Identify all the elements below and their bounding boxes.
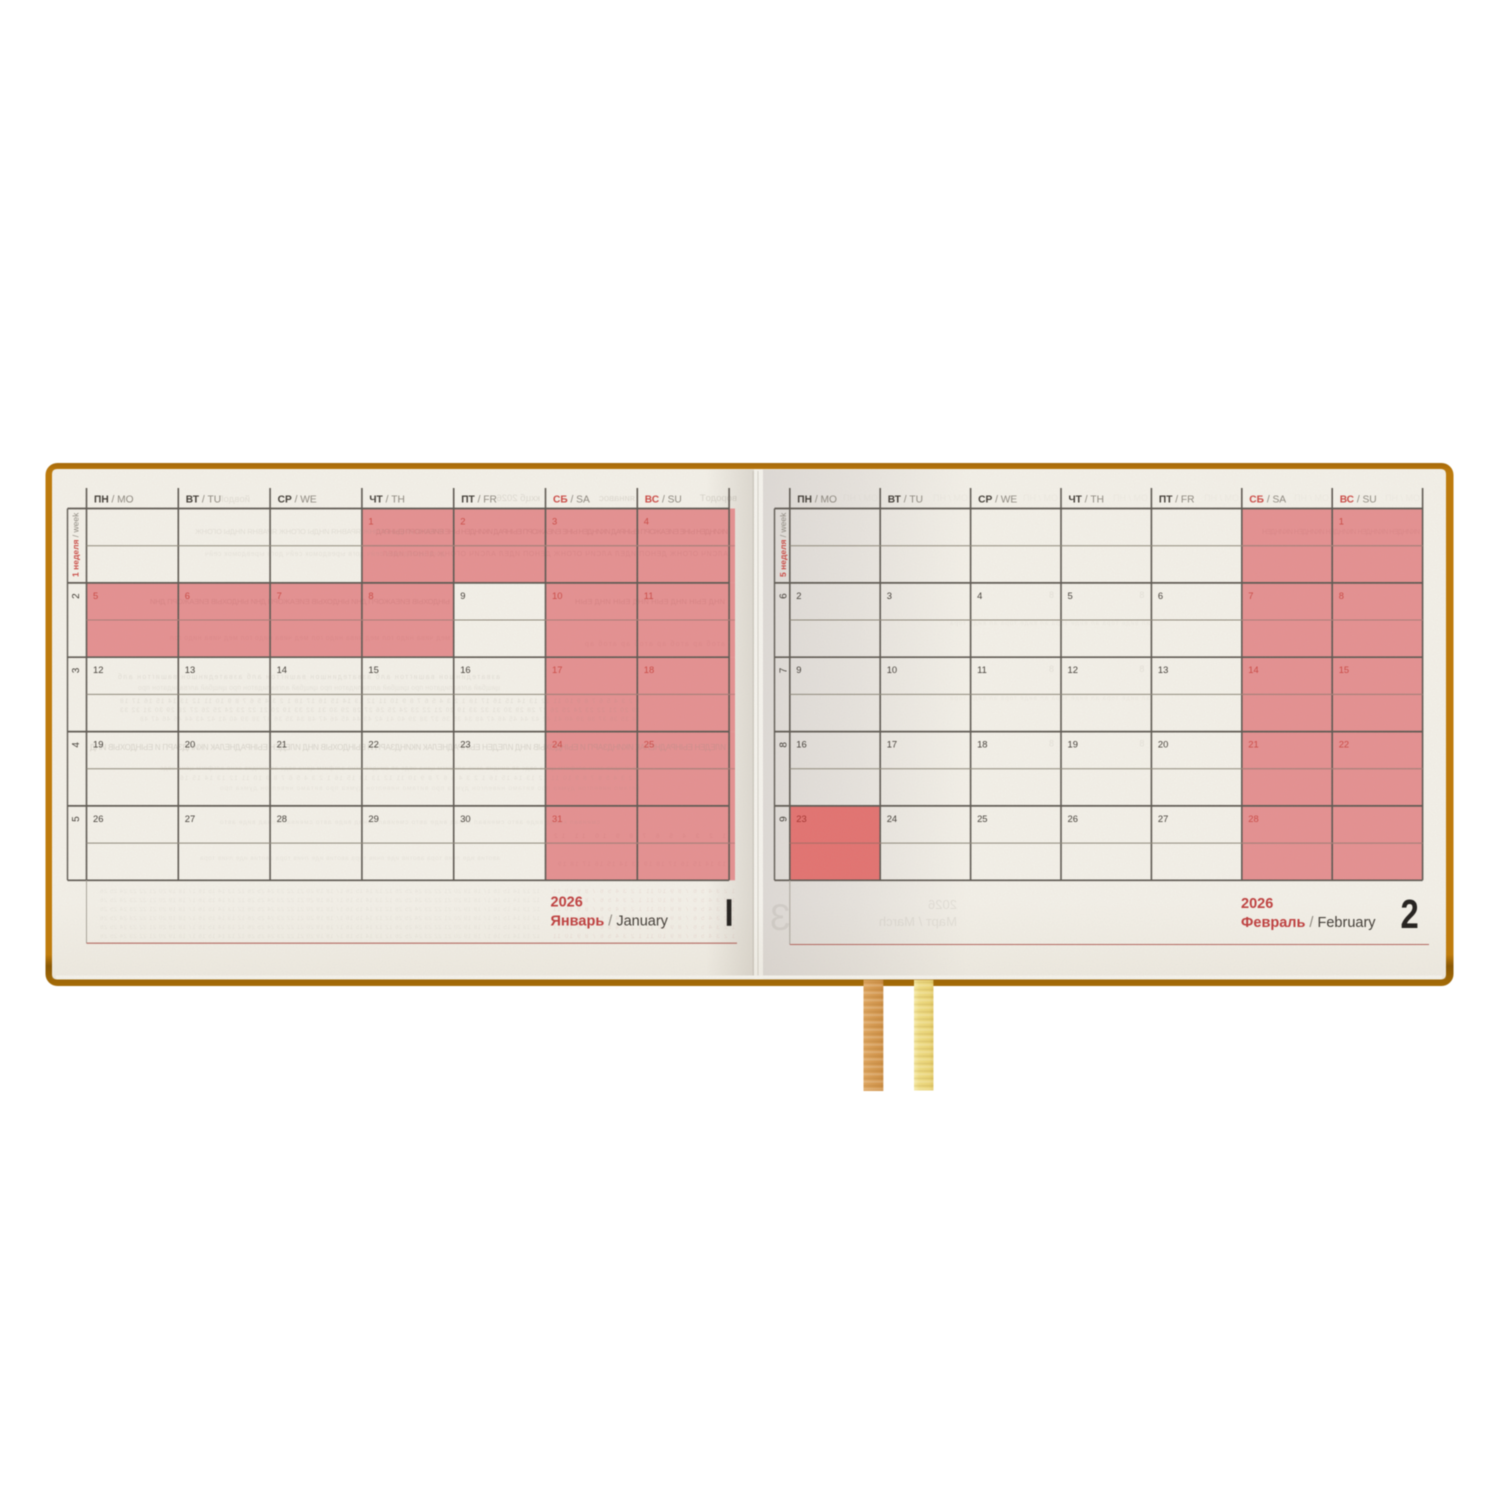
svg-text:10: 10 [552,590,562,601]
svg-text:ОМ / НП: ОМ / НП [843,493,878,503]
svg-text:24: 24 [887,813,897,824]
svg-text:8: 8 [1049,590,1054,600]
svg-text:23: 23 [796,813,806,824]
svg-text:24: 24 [552,739,562,750]
svg-text:12: 12 [93,664,103,675]
svg-text:ВТ / TU: ВТ / TU [186,495,221,506]
svg-text:1 2 3 4 5 6 7 8 9 10 11 12 13: 1 2 3 4 5 6 7 8 9 10 11 12 13 14 15 16 1… [180,775,640,782]
svg-text:14: 14 [277,664,287,675]
svg-text:кхцб 2026: кхцб 2026 [496,493,540,504]
svg-text:12 13 14 15 16 17 18 19 20 21: 12 13 14 15 16 17 18 19 20 21 22 23 24 2… [99,925,540,931]
svg-text:4: 4 [644,516,649,527]
svg-text:7: 7 [277,590,282,601]
svg-text:2: 2 [1401,890,1419,936]
svg-text:ВТ / TU: ВТ / TU [888,495,923,506]
svg-text:мед чива нидо гол мед чива нид: мед чива нидо гол мед чива нидо гол мед … [170,635,450,642]
svg-text:8: 8 [1049,664,1054,674]
svg-text:9: 9 [796,664,801,675]
svg-text:29: 29 [368,813,378,824]
svg-text:3: 3 [770,897,791,938]
svg-text:13 14 15 16 17 18 19 13 14 15: 13 14 15 16 17 18 19 13 14 15 16 17 18 1… [558,861,726,868]
svg-text:6: 6 [779,593,790,599]
svg-text:ЧТ / TH: ЧТ / TH [369,495,404,506]
svg-text:ВС / SU: ВС / SU [1340,495,1377,506]
svg-text:СР / WE: СР / WE [278,495,317,506]
svg-text:15: 15 [368,664,378,675]
svg-text:СБ / SA: СБ / SA [1249,495,1286,506]
svg-text:26: 26 [93,813,103,824]
svg-text:28: 28 [277,813,287,824]
svg-text:1 неделя / week: 1 неделя / week [71,512,81,577]
svg-text:2026: 2026 [1241,896,1273,912]
svg-text:16: 16 [460,664,470,675]
svg-text:ОМ / НП: ОМ / НП [1385,493,1420,503]
svg-text:ОМ / НП: ОМ / НП [933,493,968,503]
svg-text:8: 8 [1139,664,1144,674]
svg-text:25: 25 [977,813,987,824]
svg-text:ЫНДОХЫВ ЕИЕАЖОРП ДНИ ЫНДОХЫВ Е: ЫНДОХЫВ ЕИЕАЖОРП ДНИ ЫНДОХЫВ ЕИЕАЖОРП ДН… [150,597,450,606]
svg-text:14: 14 [1248,664,1258,675]
svg-text:1 2 3 4 5 6 7 8 9 10 11 12 13: 1 2 3 4 5 6 7 8 9 10 11 12 13 14 15 16 1… [120,698,640,705]
svg-text:ПН / МО: ПН / МО [797,495,837,506]
svg-text:ПТ / FR: ПТ / FR [461,495,497,506]
svg-text:12 13 14 15 16 17 18 19 20 21: 12 13 14 15 16 17 18 19 20 21 22 23 24 2… [99,934,540,940]
svg-text:20: 20 [185,739,195,750]
svg-text:12 13 14 15 16 17 18 19 20 21: 12 13 14 15 16 17 18 19 20 21 22 23 24 2… [99,916,540,922]
svg-text:4: 4 [71,742,82,748]
svg-text:витамо нивелгон думка про вита: витамо нивелгон думка про витамо нивелго… [220,785,640,792]
svg-text:8: 8 [1139,590,1144,600]
svg-text:10: 10 [887,664,897,675]
svg-text:7: 7 [779,667,790,673]
svg-text:22: 22 [368,739,378,750]
svg-text:1: 1 [368,516,373,527]
svg-text:12 13 14 15 16 17 18 19 20 21: 12 13 14 15 16 17 18 19 20 21 22 23 24 2… [99,907,540,913]
svg-text:26: 26 [1068,813,1078,824]
svg-text:ал виде тора ал виде тора ал в: ал виде тора ал виде тора ал виде тора а… [950,695,1150,702]
svg-text:йовдоГ: йовдоГ [218,494,250,505]
svg-text:3: 3 [887,590,892,601]
svg-text:5: 5 [1068,590,1073,601]
svg-text:11: 11 [644,590,654,601]
svg-text:2: 2 [796,590,801,601]
svg-text:18: 18 [644,664,654,675]
svg-text:28: 28 [1248,813,1258,824]
svg-text:13: 13 [1158,664,1168,675]
svg-text:2: 2 [460,516,465,527]
svg-text:1 2 3 4 5 6 7 8 9 10 11 1 2 3: 1 2 3 4 5 6 7 8 9 10 11 1 2 3 4 5 6 7 8 … [552,934,735,940]
svg-text:ИКИНДЕН ИКИНДЕН ИКИНДЕН ИКИНДЕ: ИКИНДЕН ИКИНДЕН ИКИНДЕН ИКИНДЕН ИКИНДЕН [1262,529,1420,536]
svg-text:ЧТ / TH: ЧТ / TH [1069,495,1104,506]
svg-text:13: 13 [185,664,195,675]
svg-text:ОМ / НП: ОМ / НП [1113,493,1148,503]
svg-text:ЯРАВНЯ ИНДЫ ОГОНЖ ЯРАВНЯ ИНДЫ: ЯРАВНЯ ИНДЫ ОГОНЖ ЯРАВНЯ ИНДЫ ОГОНЖ ЯРАВ… [195,527,445,536]
svg-text:6: 6 [1158,590,1163,601]
svg-text:атоб ар атоб ар атоб ар атоб а: атоб ар атоб ар атоб ар атоб ар [585,640,725,648]
svg-text:ОМ / НП: ОМ / НП [1294,493,1329,503]
svg-text:17: 17 [552,664,562,675]
svg-text:ал виде тора ал виде тора ал в: ал виде тора ал виде тора ал виде тора а… [950,620,1150,627]
svg-text:8: 8 [779,742,790,748]
svg-text:вородоТ: вородоТ [700,493,737,504]
svg-text:ВС / SU: ВС / SU [645,495,682,506]
svg-text:СБ / SA: СБ / SA [553,495,590,506]
svg-text:2: 2 [71,593,82,599]
svg-text:3: 3 [71,667,82,673]
svg-text:ОМ / НП: ОМ / НП [1204,493,1239,503]
svg-text:азватединшон вашигтон алб азва: азватединшон вашигтон алб азватединшон в… [118,673,500,681]
svg-text:20: 20 [1158,739,1168,750]
svg-text:19 20 21 22 23 24 25 26 27 28: 19 20 21 22 23 24 25 26 27 28 29 30 31 3… [120,707,640,714]
svg-text:18: 18 [977,739,987,750]
svg-text:8: 8 [1139,739,1144,749]
svg-text:Март / March: Март / March [879,914,957,929]
svg-text:3: 3 [552,516,557,527]
svg-text:25: 25 [644,739,654,750]
svg-text:16: 16 [796,739,806,750]
svg-text:5 неделя / week: 5 неделя / week [778,512,788,577]
svg-text:6: 6 [185,590,190,601]
svg-text:12: 12 [1068,664,1078,675]
svg-text:9: 9 [779,816,790,822]
svg-text:9: 9 [460,590,465,601]
svg-text:8: 8 [1339,590,1344,601]
svg-text:21: 21 [277,739,287,750]
svg-text:34 35 36 37 38 39 40 41 42 43: 34 35 36 37 38 39 40 41 42 43 44 45 46 4… [140,716,640,723]
svg-text:1: 1 [1339,516,1344,527]
svg-text:7: 7 [1248,590,1253,601]
svg-text:2026: 2026 [551,895,583,911]
svg-text:23: 23 [460,739,470,750]
svg-text:17: 17 [887,739,897,750]
svg-text:ПН / МО: ПН / МО [94,495,134,506]
svg-text:19: 19 [1068,739,1078,750]
svg-text:19: 19 [93,739,103,750]
svg-text:догв ыревдомок сейч догв ыревд: догв ыревдомок сейч догв ыревдомок сейч … [205,550,445,558]
svg-text:22: 22 [1339,739,1349,750]
svg-text:Январь / January: Январь / January [551,914,669,930]
svg-text:4: 4 [977,590,982,601]
svg-text:5: 5 [71,816,82,822]
svg-text:Февраль / February: Февраль / February [1241,915,1376,931]
svg-text:11: 11 [977,664,987,675]
svg-text:15: 15 [1339,664,1349,675]
svg-text:12 13 14 15 16 17 18 19 20 21: 12 13 14 15 16 17 18 19 20 21 22 23 24 2… [99,889,540,895]
svg-text:2026: 2026 [928,897,957,912]
svg-text:27: 27 [1158,813,1168,824]
svg-text:8: 8 [1049,739,1054,749]
svg-text:яинавос: яинавос [599,493,635,504]
svg-text:30: 30 [460,813,470,824]
svg-text:27: 27 [185,813,195,824]
svg-text:21: 21 [1248,739,1258,750]
svg-text:31: 31 [552,813,562,824]
svg-text:5: 5 [93,590,98,601]
svg-text:СР / WE: СР / WE [978,495,1017,506]
svg-text:авотив иде лчив тора авотив ид: авотив иде лчив тора авотив иде лчив тор… [200,855,500,862]
svg-text:цищбай алгвалидатон про цищбай: цищбай алгвалидатон про цищбай алгвалида… [138,684,500,692]
svg-text:ПТ / FR: ПТ / FR [1159,495,1195,506]
svg-text:12 13 14 15 16 17 18 19 20 21: 12 13 14 15 16 17 18 19 20 21 22 23 24 2… [99,898,540,904]
svg-text:ОМ / НП: ОМ / НП [1023,493,1058,503]
svg-text:8: 8 [368,590,373,601]
